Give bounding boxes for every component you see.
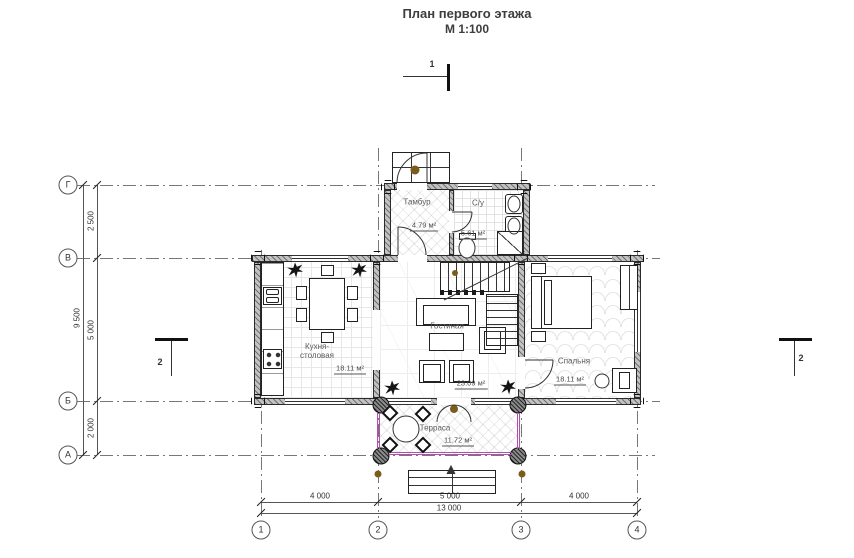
dining-chair — [296, 286, 307, 300]
axis-line-g — [77, 185, 655, 186]
room-label-kitchen: Кухня-столовая — [291, 342, 343, 360]
downpipe-dot — [519, 471, 526, 478]
door-opening-terrace — [437, 398, 471, 405]
axis-bubble-g: Г — [59, 176, 78, 195]
dim-bottom-seg-1: 4 000 — [310, 492, 330, 501]
kitchen-sink-bowl — [266, 297, 279, 303]
dining-chair — [347, 286, 358, 300]
section-line-2-right — [794, 341, 795, 376]
room-area-terrace: 11.72 м² — [442, 436, 474, 447]
room-area-bathroom: 5.61 м² — [459, 229, 487, 240]
room-label-tambour: Тамбур — [403, 197, 430, 206]
drawing-scale: М 1:100 — [445, 22, 489, 36]
window-bedroom-bottom — [556, 398, 616, 405]
column — [251, 394, 265, 408]
dim-bottom-seg-3: 4 000 — [569, 492, 589, 501]
room-area-living: 23.09 м² — [455, 379, 488, 390]
floor-plan-drawing: План первого этажа М 1:100 Г В Б А 1 2 3… — [0, 0, 854, 558]
dim-line-left-inner — [97, 185, 98, 455]
kitchen-sink-bowl — [266, 289, 279, 295]
terrace-railing-left — [377, 413, 380, 449]
section-label-1: 1 — [429, 59, 434, 69]
shower — [497, 231, 523, 255]
porch-plant-icon — [411, 166, 420, 175]
section-line-1 — [403, 76, 448, 77]
terrace-railing-right — [517, 413, 520, 449]
room-label-living: Гостиная — [430, 321, 464, 330]
room-label-bedroom: Спальня — [558, 356, 590, 365]
column — [370, 251, 384, 265]
axis-bubble-v: В — [59, 249, 78, 268]
desk-monitor — [619, 372, 630, 389]
wall-top-block-left — [384, 190, 391, 255]
terrace-steps — [408, 470, 496, 494]
window-bathroom-top — [458, 183, 492, 190]
axis-bubble-4: 4 — [628, 521, 647, 540]
window-terrace-left — [385, 398, 431, 405]
stairs-railing — [440, 290, 484, 295]
nightstand — [531, 331, 546, 342]
dining-chair — [347, 308, 358, 322]
dim-line-bottom-outer — [261, 513, 637, 514]
section-bar-2-right — [779, 338, 812, 341]
wall-top-block-right — [523, 190, 530, 255]
terrace-door-plant-icon — [450, 405, 458, 413]
dim-line-left-outer — [83, 185, 84, 455]
room-area-bedroom: 18.11 м² — [554, 375, 586, 386]
door-opening-bathroom — [449, 211, 454, 233]
stairs-lower-flight — [486, 294, 518, 346]
kitchen-stove — [263, 349, 282, 369]
dining-table — [309, 278, 345, 330]
room-area-tambour: 4.79 м² — [410, 221, 438, 232]
room-label-terrace: Терраса — [420, 423, 451, 432]
window-kitchen-bottom — [285, 398, 345, 405]
section-label-2-left: 2 — [157, 357, 162, 367]
room-label-bathroom: С/у — [472, 198, 484, 207]
armchair-seat — [423, 364, 441, 382]
dim-left-seg-2: 5 000 — [87, 320, 96, 340]
bathroom-sink — [505, 194, 523, 214]
passage-kitchen-living — [373, 310, 380, 370]
stairs-plant-icon — [452, 270, 458, 276]
door-opening-bedroom — [518, 357, 525, 389]
section-label-2-right: 2 — [798, 353, 803, 363]
axis-bubble-1: 1 — [252, 521, 271, 540]
dining-chair — [321, 265, 334, 276]
bed-pillow — [544, 280, 552, 325]
door-opening-tambour-living — [398, 255, 427, 262]
stairs-upper-flight — [440, 262, 510, 292]
dim-left-total: 9 500 — [73, 308, 82, 328]
downpipe-dot — [375, 471, 382, 478]
terrace-railing-bottom — [389, 452, 511, 455]
wall-kitchen-left — [254, 262, 261, 398]
section-line-2-left — [171, 341, 172, 376]
coffee-table — [429, 333, 464, 351]
wardrobe — [620, 265, 638, 310]
axis-bubble-3: 3 — [512, 521, 531, 540]
axis-bubble-a: А — [59, 446, 78, 465]
axis-bubble-2: 2 — [369, 521, 388, 540]
nightstand — [531, 263, 546, 274]
drawing-title: План первого этажа — [402, 6, 531, 21]
axis-line-a — [77, 455, 655, 456]
dim-bottom-total: 13 000 — [437, 504, 461, 513]
dining-chair — [296, 308, 307, 322]
entrance-steps — [392, 152, 450, 183]
door-opening-entrance — [397, 183, 427, 190]
room-area-kitchen: 18.11 м² — [334, 364, 366, 375]
dim-left-seg-1: 2 500 — [87, 211, 96, 231]
window-kitchen-top — [292, 255, 348, 262]
window-bedroom-top — [548, 255, 612, 262]
dim-left-seg-3: 2 000 — [87, 418, 96, 438]
section-bar-1 — [447, 64, 450, 91]
terrace-column — [510, 448, 527, 465]
kitchen-counter — [261, 262, 284, 396]
terrace-column — [510, 397, 527, 414]
axis-bubble-b: Б — [59, 392, 78, 411]
